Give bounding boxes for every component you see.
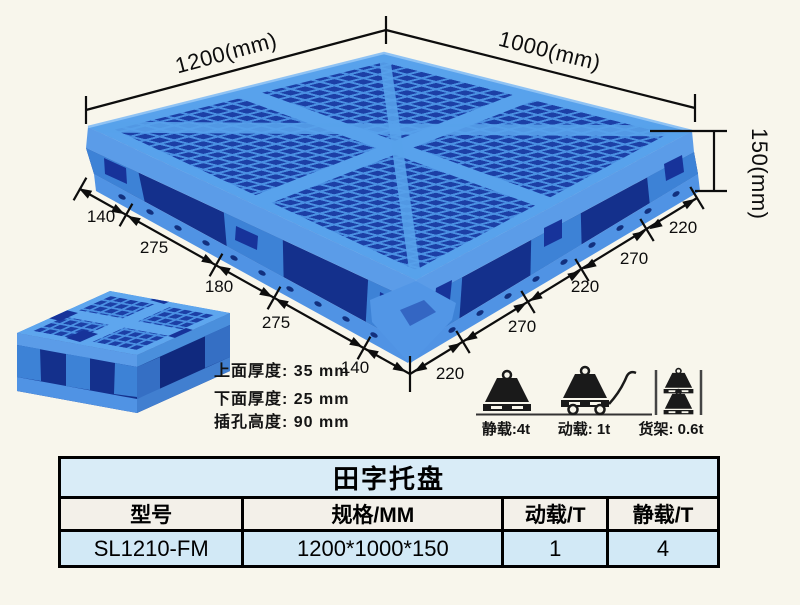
static-load-icon: [483, 371, 531, 411]
note-top-thickness: 上面厚度: 35 mm: [214, 361, 349, 380]
header-size: 规格/MM: [243, 498, 503, 531]
spec-table-header-row: 型号 规格/MM 动载/T 静载/T: [60, 498, 719, 531]
dim-left-1: 140: [87, 207, 115, 226]
cell-model: SL1210-FM: [60, 531, 243, 567]
dim-right-2: 270: [620, 249, 648, 268]
dim-left-3: 180: [205, 277, 233, 296]
dim-left-2: 275: [140, 238, 168, 257]
rack-load-label: 货架: 0.6t: [638, 420, 703, 438]
product-spec-sheet: 1200(mm) 1000(mm) 150(mm): [0, 0, 800, 600]
thickness-notes: 上面厚度: 35 mm 下面厚度: 25 mm 插孔高度: 90 mm: [214, 361, 349, 431]
load-ratings: 静载:4t 动载: 1t 货架: 0.6t: [476, 367, 704, 438]
cell-static-load: 4: [608, 531, 719, 567]
dim-right-3: 220: [571, 277, 599, 296]
dynamic-load-icon: [561, 367, 636, 414]
pallet-thumbnail: [17, 291, 230, 413]
dim-width-label: 1200(mm): [172, 27, 279, 78]
cell-size: 1200*1000*150: [243, 531, 503, 567]
dim-right-1: 220: [669, 218, 697, 237]
spec-table-title-row: 田字托盘: [60, 458, 719, 498]
header-model: 型号: [60, 498, 243, 531]
dim-left-4: 275: [262, 313, 290, 332]
header-static-load: 静载/T: [608, 498, 719, 531]
dim-right-5: 220: [436, 364, 464, 383]
note-fork-height: 插孔高度: 90 mm: [214, 412, 349, 431]
spec-table: 田字托盘 型号 规格/MM 动载/T 静载/T SL1210-FM 1200*1…: [58, 456, 720, 568]
dim-depth-label: 1000(mm): [496, 26, 603, 75]
spec-table-title: 田字托盘: [60, 458, 719, 498]
cell-dynamic-load: 1: [503, 531, 608, 567]
rack-load-icon: [656, 369, 701, 415]
static-load-label: 静载:4t: [482, 420, 530, 438]
note-bottom-thickness: 下面厚度: 25 mm: [214, 389, 349, 408]
dynamic-load-label: 动载: 1t: [558, 420, 611, 438]
dim-right-4: 270: [508, 317, 536, 336]
dim-height-label: 150(mm): [747, 128, 772, 220]
header-dynamic-load: 动载/T: [503, 498, 608, 531]
spec-table-data-row: SL1210-FM 1200*1000*150 1 4: [60, 531, 719, 567]
